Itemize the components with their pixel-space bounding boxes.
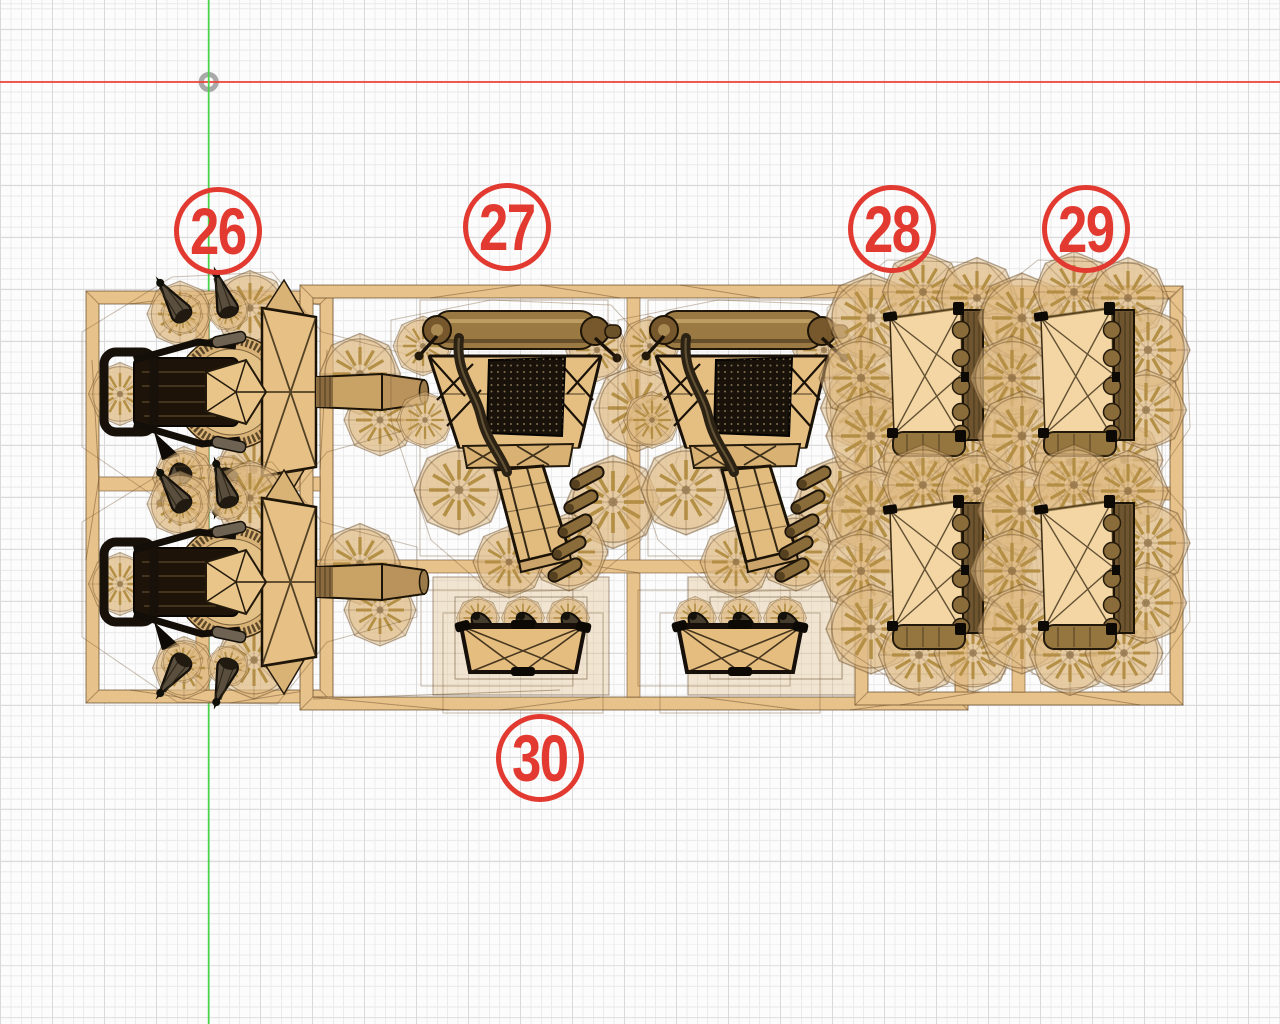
part-badge-30[interactable]: 30 (496, 714, 584, 802)
part-badge-29[interactable]: 29 (1042, 185, 1130, 273)
cad-viewport[interactable]: 26 27 28 29 30 (0, 0, 1280, 1024)
part-badge-27-label: 27 (479, 194, 535, 260)
part-badge-28-label: 28 (864, 196, 920, 262)
part-26-machine-bottom[interactable] (82, 453, 429, 712)
part-badge-29-label: 29 (1058, 196, 1114, 262)
part-badge-26[interactable]: 26 (174, 187, 262, 275)
part-badge-27[interactable]: 27 (463, 183, 551, 271)
model-canvas[interactable] (0, 0, 1280, 1024)
part-badge-28[interactable]: 28 (848, 185, 936, 273)
part-29-shelter-bottom[interactable] (970, 445, 1190, 696)
part-badge-30-label: 30 (512, 725, 568, 791)
part-badge-26-label: 26 (190, 198, 246, 264)
